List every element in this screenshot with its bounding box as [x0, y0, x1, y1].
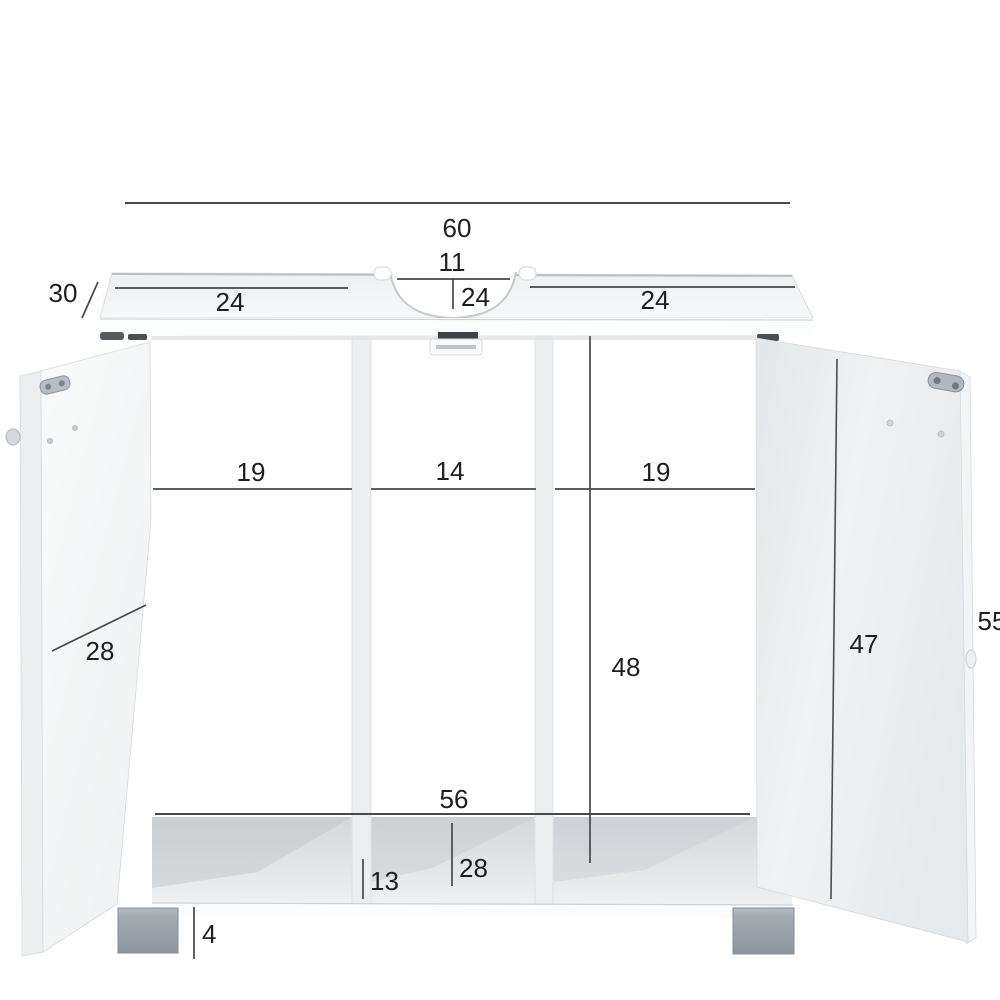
left-leg: [118, 908, 178, 953]
dim-label-inner-center: 14: [436, 456, 465, 486]
divider-left: [352, 333, 371, 905]
left-door-knob: [6, 429, 20, 445]
dim-label-top-right: 24: [641, 285, 670, 315]
dim-label-bottom-width: 56: [440, 784, 469, 814]
dim-label-leg-height: 4: [202, 919, 216, 949]
vanity-cabinet-dimension-diagram: 56 28 13 4 19 14 19 48 60 11 24 24 24 30: [0, 0, 1000, 1000]
cutout-lip-left: [374, 267, 391, 280]
right-leg: [733, 908, 794, 954]
dim-label-top-center: 24: [461, 282, 490, 312]
dim-label-cutout-width: 11: [439, 247, 466, 277]
dim-label-total-width: 60: [443, 213, 472, 243]
left-door-screw-2: [48, 439, 53, 444]
right-door-screw-2: [938, 431, 944, 437]
dim-label-bottom-left: 13: [370, 866, 399, 896]
dim-label-inner-left: 19: [237, 457, 266, 487]
right-door-screw-1: [887, 420, 893, 426]
pipe-clamp-slot: [436, 345, 476, 349]
dim-label-overall-height: 55: [978, 606, 1000, 636]
divider-right: [535, 333, 553, 905]
dim-label-top-left: 24: [216, 287, 245, 317]
hinge-mount-left-2: [128, 334, 147, 340]
dim-label-door-height: 47: [850, 629, 879, 659]
interior-back-panel: [152, 333, 756, 818]
cutout-lip-right: [519, 267, 536, 280]
diagram-canvas: 56 28 13 4 19 14 19 48 60 11 24 24 24 30: [0, 0, 1000, 1000]
pipe-clamp-bar: [438, 332, 478, 339]
left-door-edge: [20, 371, 43, 956]
dim-label-inner-height: 48: [612, 652, 641, 682]
hinge-mount-left: [100, 332, 124, 340]
dim-label-inner-right: 19: [642, 457, 671, 487]
left-door-screw-1: [73, 426, 78, 431]
dim-label-door-width: 28: [86, 636, 115, 666]
dim-label-depth: 30: [49, 278, 78, 308]
dim-label-bottom-center: 28: [459, 853, 488, 883]
right-door-knob: [966, 650, 976, 668]
